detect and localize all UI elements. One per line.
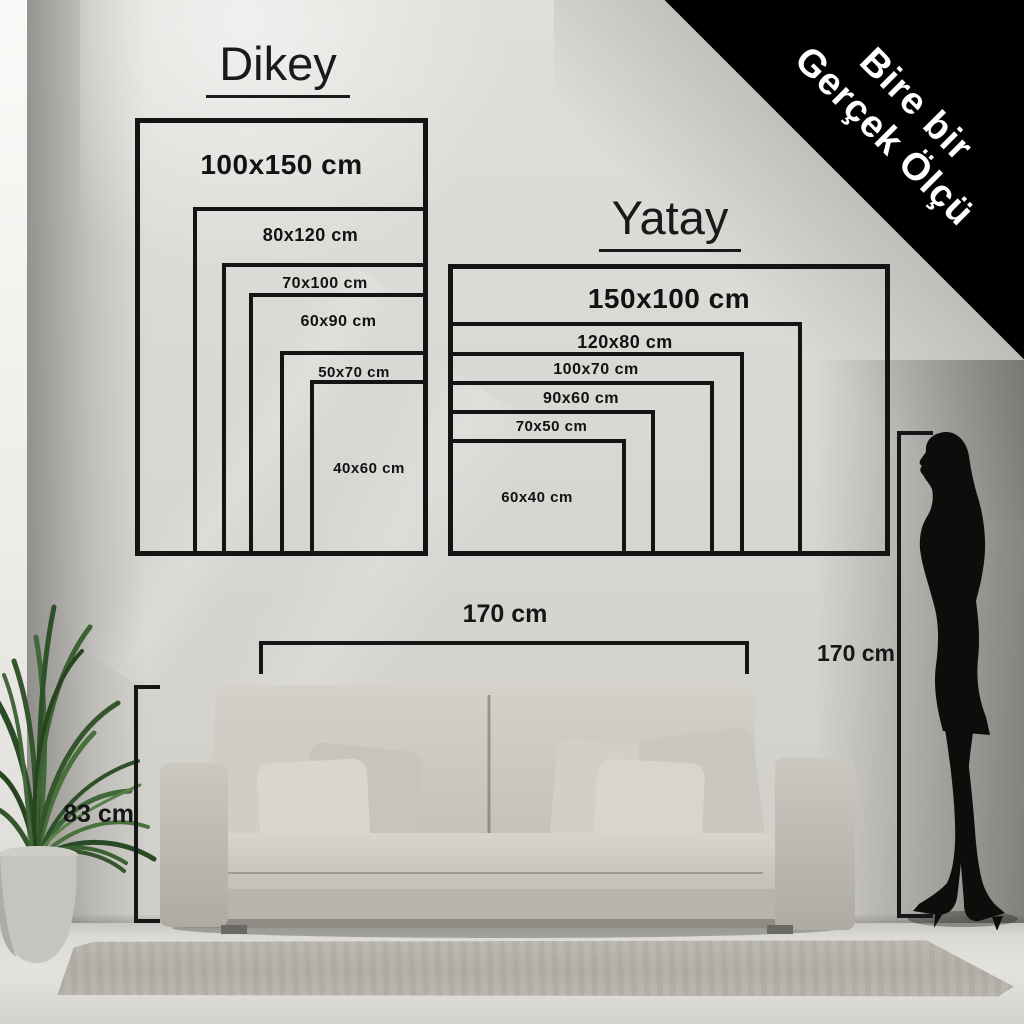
dikey-title: Dikey — [178, 36, 378, 98]
size-label: 150x100 cm — [453, 283, 885, 315]
size-label: 40x60 cm — [314, 460, 424, 477]
wall-art-size-guide: Dikey 100x150 cm 80x120 cm 70x100 cm 60x… — [0, 0, 1024, 1024]
sofa — [155, 675, 860, 940]
sofa-arm-right — [775, 758, 855, 930]
size-label: 80x120 cm — [197, 225, 424, 246]
size-label: 60x40 cm — [452, 489, 622, 506]
size-label: 70x100 cm — [226, 275, 424, 293]
size-label: 70x50 cm — [452, 418, 651, 435]
sofa-width-label: 170 cm — [430, 600, 580, 629]
sofa-arm-left — [160, 763, 228, 927]
size-rect-60x40: 60x40 cm — [448, 439, 626, 556]
size-label: 100x150 cm — [140, 149, 423, 181]
person-height-label: 170 cm — [800, 640, 895, 667]
size-label: 90x60 cm — [452, 390, 710, 408]
yatay-title: Yatay — [570, 190, 770, 252]
sofa-height-label: 83 cm — [58, 800, 134, 829]
person-silhouette — [893, 425, 1024, 930]
size-rect-40x60: 40x60 cm — [310, 380, 428, 556]
size-label: 50x70 cm — [284, 364, 424, 381]
size-label: 60x90 cm — [253, 313, 424, 331]
size-label: 120x80 cm — [452, 332, 798, 353]
size-label: 100x70 cm — [452, 361, 740, 379]
